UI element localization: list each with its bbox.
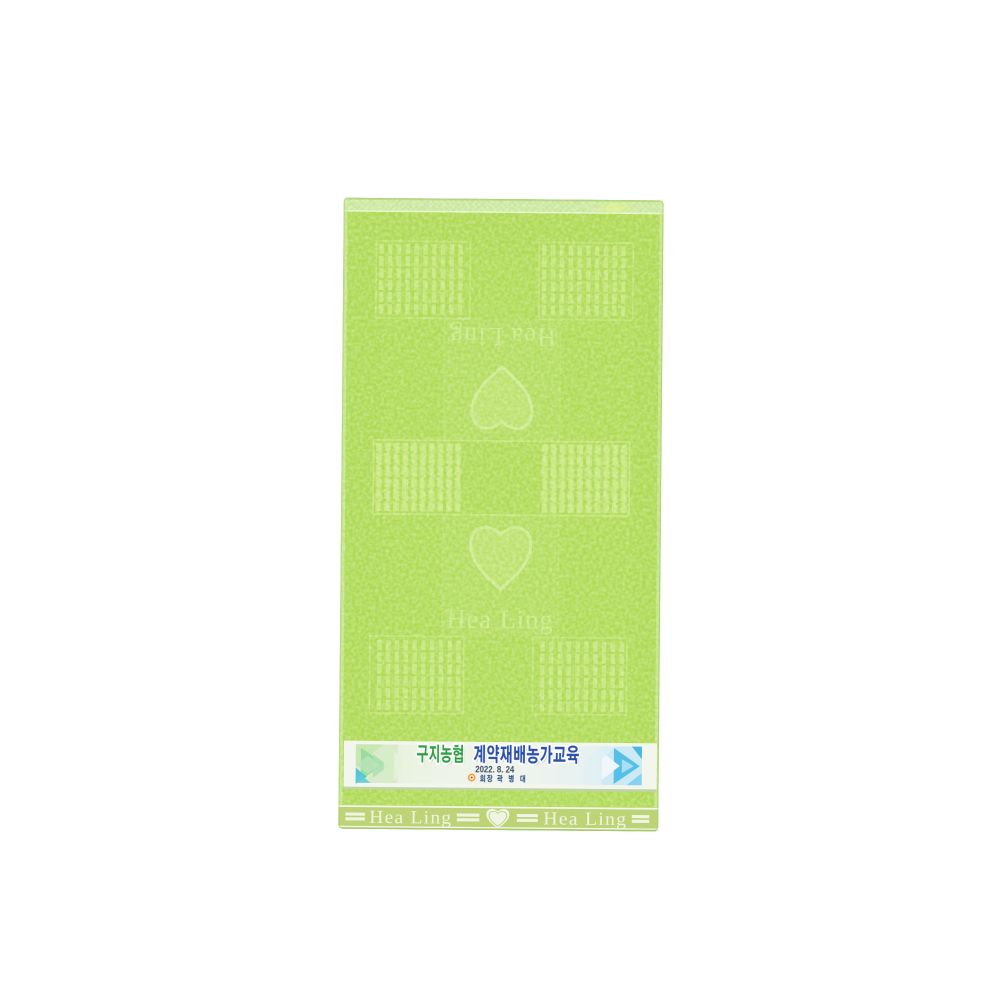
svg-text:2022. 8. 24: 2022. 8. 24 [475, 764, 514, 774]
